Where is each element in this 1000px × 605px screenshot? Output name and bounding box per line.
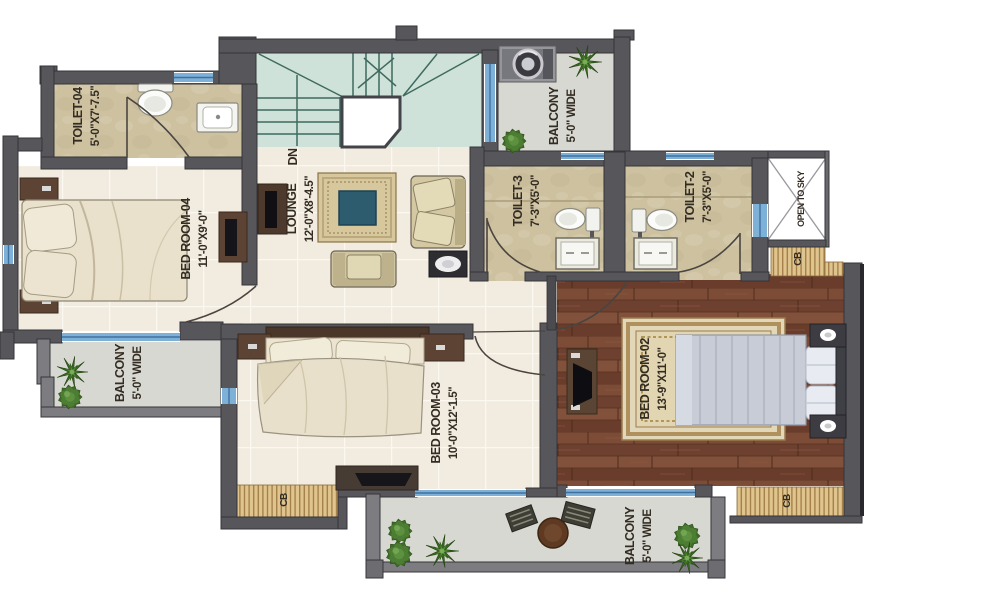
svg-text:TOILET-2: TOILET-2 (683, 171, 697, 222)
svg-text:BED ROOM-03: BED ROOM-03 (429, 382, 443, 464)
svg-text:5'-0" WIDE: 5'-0" WIDE (132, 346, 144, 400)
svg-text:10'-0"X12'-1.5": 10'-0"X12'-1.5" (448, 387, 460, 459)
svg-text:CB: CB (782, 494, 793, 508)
svg-text:TOILET-3: TOILET-3 (511, 175, 525, 226)
svg-text:LOUNGE: LOUNGE (285, 184, 299, 235)
svg-text:OPEN TO SKY: OPEN TO SKY (796, 171, 806, 227)
svg-text:DN: DN (286, 148, 300, 166)
svg-text:CB: CB (279, 493, 290, 507)
svg-text:5'-0" WIDE: 5'-0" WIDE (566, 89, 578, 143)
svg-text:13'-9"X11'-0": 13'-9"X11'-0" (657, 347, 669, 410)
svg-text:TOILET-04: TOILET-04 (71, 87, 85, 145)
svg-text:5'-0"X7'-7.5": 5'-0"X7'-7.5" (90, 86, 102, 146)
svg-text:BALCONY: BALCONY (113, 343, 127, 402)
svg-text:5'-0" WIDE: 5'-0" WIDE (642, 509, 654, 563)
svg-text:BED ROOM-04: BED ROOM-04 (179, 198, 193, 280)
svg-text:7'-3"X5'-0": 7'-3"X5'-0" (530, 175, 542, 227)
svg-text:BED ROOM-02: BED ROOM-02 (638, 338, 652, 420)
svg-text:12'-0"X8'-4.5": 12'-0"X8'-4.5" (304, 176, 316, 242)
svg-text:BALCONY: BALCONY (547, 86, 561, 145)
svg-text:11'-0"X9'-0": 11'-0"X9'-0" (198, 210, 210, 267)
svg-text:CB: CB (793, 252, 804, 266)
svg-text:BALCONY: BALCONY (623, 506, 637, 565)
svg-text:7'-3"X5'-0": 7'-3"X5'-0" (702, 171, 714, 223)
